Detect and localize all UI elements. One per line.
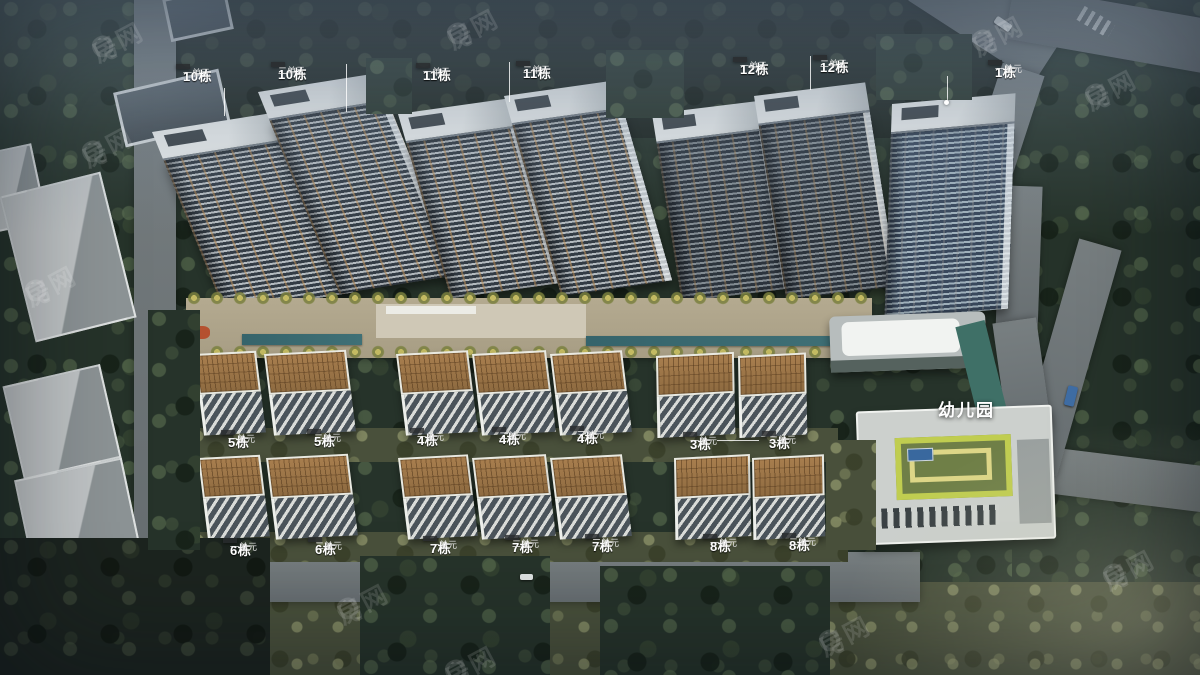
qfang-logo-icon: Q: [438, 650, 476, 675]
qfang-logo-icon: Q: [440, 13, 478, 55]
qfang-logo-icon: Q: [330, 588, 368, 630]
qfang-watermark-text: 房网: [812, 607, 877, 664]
qfang-logo-icon: Q: [812, 620, 850, 662]
qfang-logo-icon: Q: [85, 26, 123, 68]
qfang-watermark-text: 房网: [85, 13, 150, 70]
qfang-logo-icon: Q: [1096, 554, 1134, 596]
qfang-logo-icon: Q: [18, 270, 56, 312]
watermarks-layer: Q 房网 Q 房网 Q 房网 Q 房网 Q 房网 Q 房网 Q 房网 Q 房网 …: [0, 0, 1200, 675]
qfang-watermark-text: 房网: [438, 637, 503, 675]
qfang-watermark-text: 房网: [75, 118, 140, 175]
qfang-logo-icon: Q: [1078, 74, 1116, 116]
qfang-watermark-text: 房网: [440, 0, 505, 57]
qfang-watermark-text: 房网: [1078, 61, 1143, 118]
qfang-logo-icon: Q: [965, 20, 1003, 62]
qfang-logo-icon: Q: [75, 131, 113, 173]
qfang-watermark-text: 房网: [965, 7, 1030, 64]
qfang-watermark-text: 房网: [1096, 541, 1161, 598]
aerial-site-rendering: 10栋 一单元 10栋 二单元 11栋 一单元 11栋 二单元 12栋 一单元 …: [0, 0, 1200, 675]
qfang-watermark-text: 房网: [18, 257, 83, 314]
qfang-watermark-text: 房网: [330, 575, 395, 632]
